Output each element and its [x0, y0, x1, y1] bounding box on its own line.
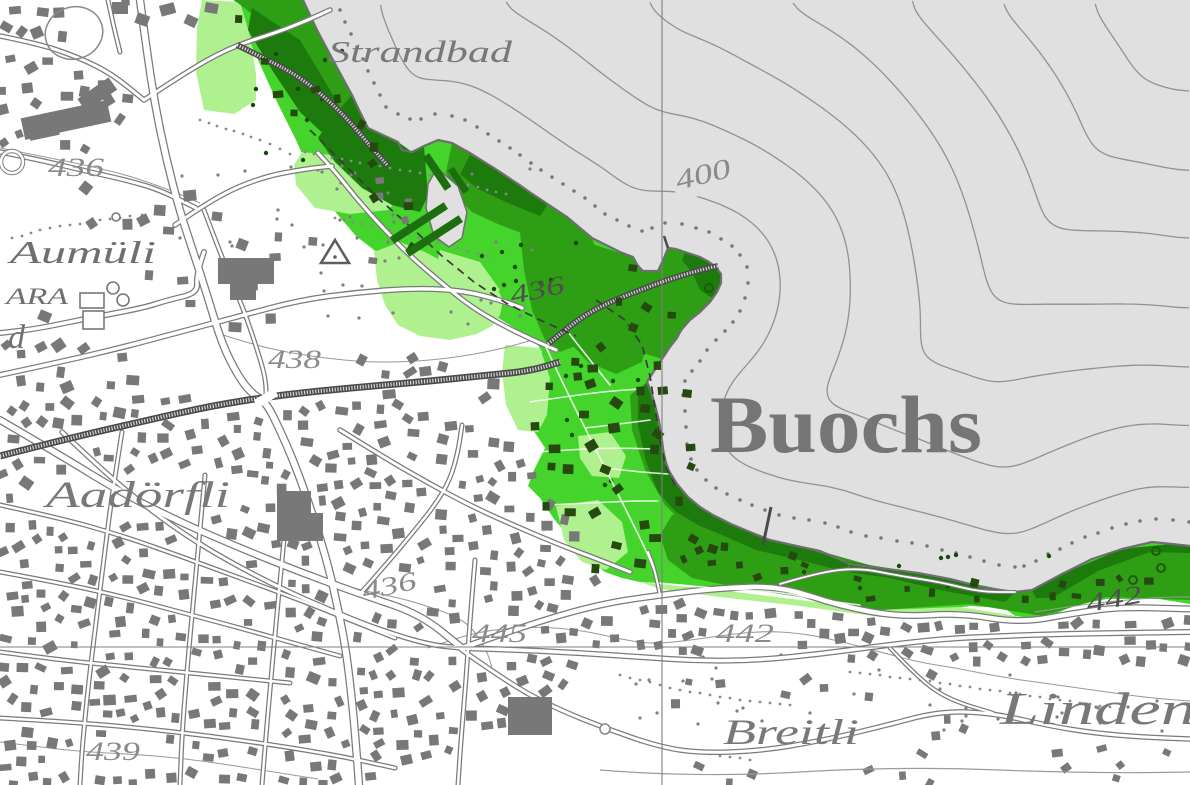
svg-text:ARA: ARA — [3, 284, 69, 309]
svg-text:Breitli: Breitli — [723, 712, 859, 752]
svg-text:438: 438 — [268, 345, 321, 374]
svg-text:439: 439 — [86, 737, 140, 766]
svg-text:436: 436 — [48, 153, 104, 182]
svg-text:442: 442 — [716, 619, 774, 648]
svg-text:d: d — [8, 319, 26, 356]
svg-text:445: 445 — [472, 619, 527, 648]
svg-text:Aadörfli: Aadörfli — [42, 475, 230, 516]
svg-text:Buochs: Buochs — [710, 379, 982, 470]
svg-text:Strandbad: Strandbad — [328, 34, 513, 69]
svg-text:Linden: Linden — [998, 683, 1190, 734]
svg-text:Aumüli: Aumüli — [7, 234, 156, 270]
